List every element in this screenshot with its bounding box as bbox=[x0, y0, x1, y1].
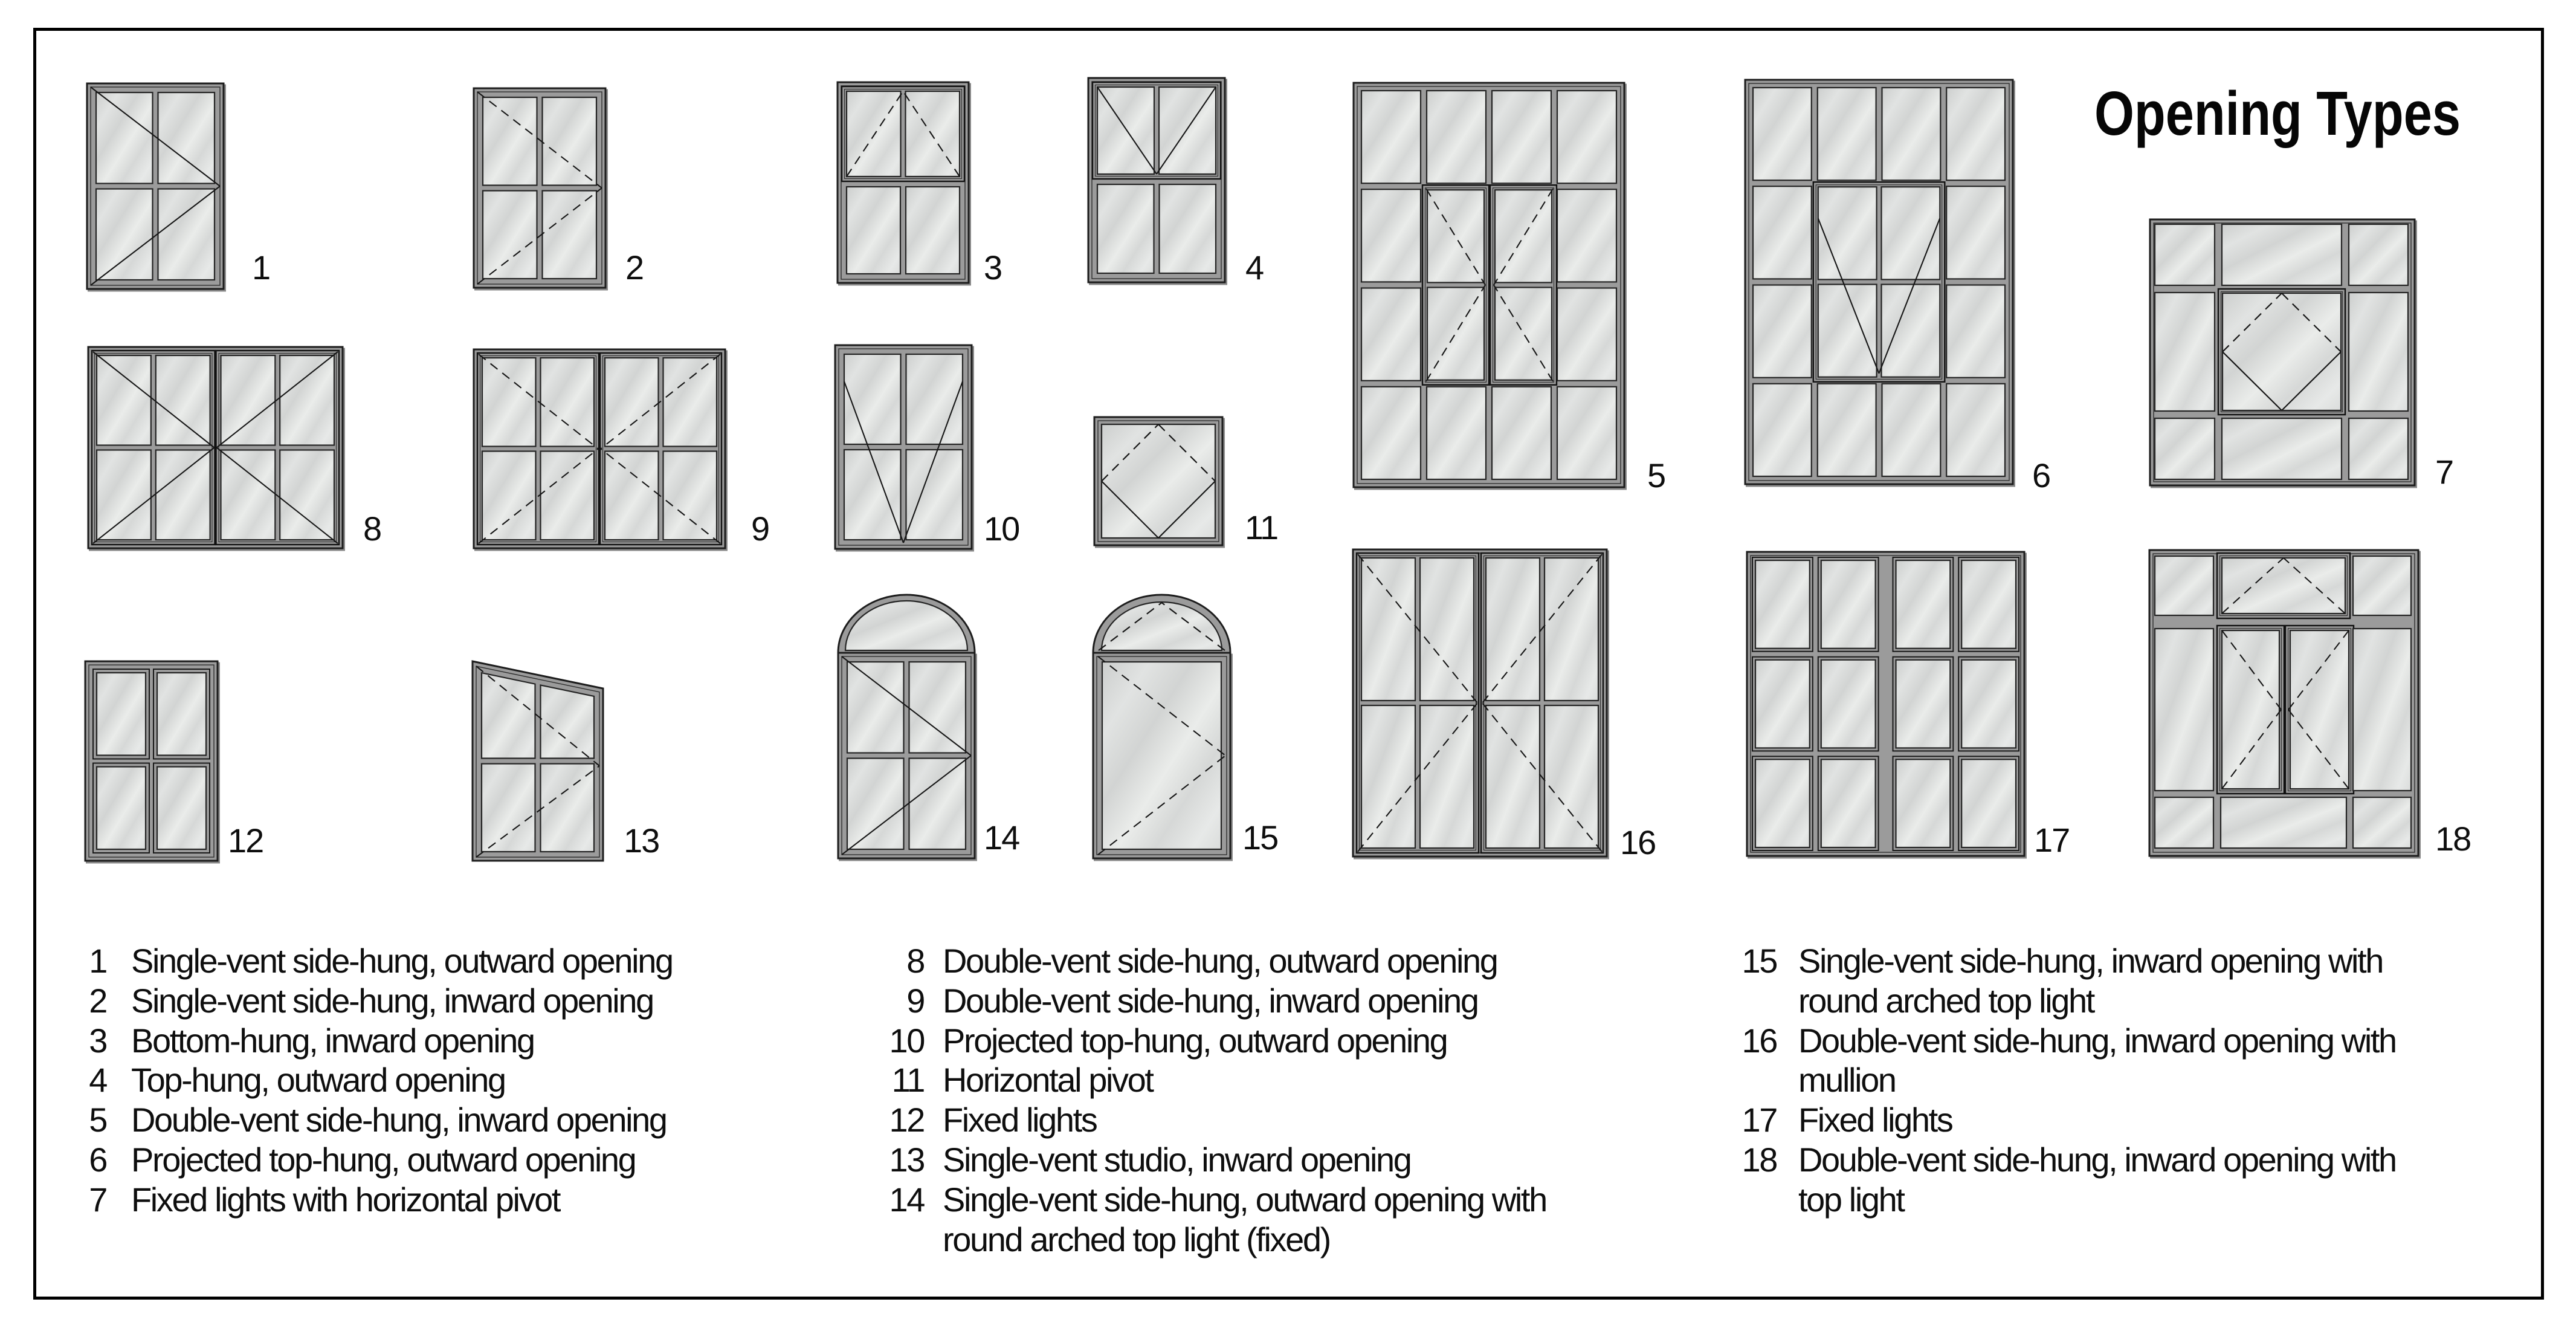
svg-text:5: 5 bbox=[89, 1101, 106, 1139]
svg-text:18: 18 bbox=[1742, 1141, 1777, 1179]
svg-text:13: 13 bbox=[889, 1141, 925, 1179]
svg-text:12: 12 bbox=[228, 821, 263, 860]
svg-text:Single-vent side-hung, inward: Single-vent side-hung, inward opening bbox=[131, 982, 653, 1020]
svg-text:3: 3 bbox=[984, 248, 1001, 287]
svg-text:16: 16 bbox=[1620, 823, 1655, 861]
svg-text:Bottom-hung, inward opening: Bottom-hung, inward opening bbox=[131, 1022, 534, 1060]
svg-text:13: 13 bbox=[624, 821, 659, 860]
svg-text:Fixed lights with horizontal p: Fixed lights with horizontal pivot bbox=[131, 1181, 561, 1219]
svg-text:10: 10 bbox=[984, 510, 1019, 548]
svg-text:top light: top light bbox=[1798, 1181, 1905, 1219]
svg-text:Double-vent side-hung, inward: Double-vent side-hung, inward opening bbox=[131, 1101, 667, 1139]
svg-text:3: 3 bbox=[89, 1022, 106, 1060]
svg-text:11: 11 bbox=[892, 1061, 925, 1099]
svg-text:10: 10 bbox=[889, 1022, 925, 1060]
svg-text:Projected top-hung, outward op: Projected top-hung, outward opening bbox=[943, 1022, 1447, 1060]
svg-text:8: 8 bbox=[906, 942, 924, 980]
svg-text:15: 15 bbox=[1242, 818, 1277, 857]
svg-text:Projected top-hung, outward op: Projected top-hung, outward opening bbox=[131, 1141, 635, 1179]
svg-text:14: 14 bbox=[984, 818, 1019, 857]
svg-text:Fixed lights: Fixed lights bbox=[1798, 1101, 1952, 1139]
svg-text:Double-vent side-hung, outward: Double-vent side-hung, outward opening bbox=[943, 942, 1497, 980]
svg-text:15: 15 bbox=[1742, 942, 1777, 980]
svg-text:mullion: mullion bbox=[1798, 1061, 1896, 1099]
svg-text:Horizontal pivot: Horizontal pivot bbox=[943, 1061, 1154, 1099]
svg-text:Single-vent side-hung, inward: Single-vent side-hung, inward opening wi… bbox=[1798, 942, 2383, 980]
svg-text:16: 16 bbox=[1742, 1022, 1777, 1060]
svg-text:18: 18 bbox=[2435, 820, 2470, 858]
svg-text:Double-vent side-hung, inward: Double-vent side-hung, inward opening bbox=[943, 982, 1478, 1020]
svg-text:8: 8 bbox=[363, 510, 381, 548]
svg-text:2: 2 bbox=[625, 248, 643, 287]
svg-text:14: 14 bbox=[889, 1181, 925, 1219]
svg-text:Opening Types: Opening Types bbox=[2094, 79, 2461, 148]
svg-text:17: 17 bbox=[1742, 1101, 1777, 1139]
svg-text:11: 11 bbox=[1245, 508, 1277, 546]
svg-text:12: 12 bbox=[889, 1101, 925, 1139]
svg-text:round arched top light: round arched top light bbox=[1798, 982, 2096, 1020]
svg-text:9: 9 bbox=[906, 982, 924, 1020]
svg-text:17: 17 bbox=[2034, 821, 2069, 859]
svg-text:Single-vent studio, inward ope: Single-vent studio, inward opening bbox=[943, 1141, 1411, 1179]
svg-text:9: 9 bbox=[751, 510, 769, 548]
svg-text:4: 4 bbox=[1245, 248, 1264, 287]
svg-text:1: 1 bbox=[252, 248, 270, 287]
svg-text:2: 2 bbox=[89, 982, 106, 1020]
svg-text:5: 5 bbox=[1647, 456, 1665, 494]
svg-text:Single-vent side-hung, outward: Single-vent side-hung, outward opening w… bbox=[943, 1181, 1546, 1219]
svg-text:round arched top light (fixed): round arched top light (fixed) bbox=[943, 1220, 1330, 1258]
svg-text:4: 4 bbox=[89, 1061, 107, 1099]
svg-text:7: 7 bbox=[89, 1181, 106, 1219]
svg-text:6: 6 bbox=[89, 1141, 106, 1179]
svg-text:Double-vent side-hung, inward: Double-vent side-hung, inward opening wi… bbox=[1798, 1022, 2396, 1060]
svg-text:1: 1 bbox=[89, 942, 106, 980]
svg-text:Single-vent side-hung, outward: Single-vent side-hung, outward opening bbox=[131, 942, 673, 980]
svg-text:Double-vent side-hung, inward: Double-vent side-hung, inward opening wi… bbox=[1798, 1141, 2396, 1179]
svg-text:7: 7 bbox=[2435, 453, 2453, 491]
svg-text:Fixed lights: Fixed lights bbox=[943, 1101, 1097, 1139]
svg-text:Top-hung, outward opening: Top-hung, outward opening bbox=[131, 1061, 505, 1099]
svg-text:6: 6 bbox=[2032, 456, 2050, 494]
